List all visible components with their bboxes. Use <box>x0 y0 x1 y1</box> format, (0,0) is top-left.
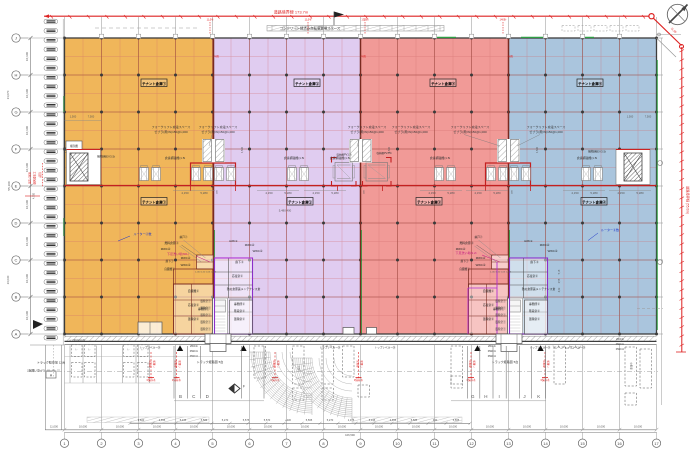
svg-text:2,58: 2,58 <box>559 278 561 283</box>
svg-text:17: 17 <box>654 441 659 446</box>
svg-text:防災倉庫兼メンテナンス倉: 防災倉庫兼メンテナンス倉 <box>227 287 261 291</box>
svg-text:倉素補強機(1.5t: 倉素補強機(1.5t <box>577 155 597 160</box>
svg-text:梱包機: 梱包機 <box>70 144 78 148</box>
svg-text:風除室②: 風除室② <box>529 317 540 321</box>
svg-text:4,150: 4,150 <box>617 191 625 195</box>
svg-text:5,585: 5,585 <box>201 418 208 422</box>
svg-text:5,280: 5,280 <box>284 191 292 195</box>
svg-text:10,000: 10,000 <box>560 425 569 429</box>
svg-text:5,280: 5,280 <box>447 191 455 195</box>
svg-text:4,500: 4,500 <box>536 146 539 153</box>
svg-text:区画線: 区画線 <box>543 360 547 368</box>
svg-text:仮囲い: 仮囲い <box>178 360 182 368</box>
svg-text:11,00: 11,00 <box>670 26 678 34</box>
svg-text:I: I <box>498 394 499 399</box>
svg-text:13: 13 <box>506 441 511 446</box>
svg-text:10,000: 10,000 <box>338 425 347 429</box>
svg-text:仮囲いライン: 仮囲いライン <box>29 369 46 373</box>
svg-text:事務所②: 事務所② <box>234 302 245 306</box>
svg-text:自販機②: 自販機② <box>188 289 199 293</box>
svg-text:自販機②: 自販機② <box>483 289 494 293</box>
svg-text:↓勾配: ↓勾配 <box>360 54 367 58</box>
svg-text:+430: +430 <box>285 418 291 422</box>
svg-text:仮囲い設置: 仮囲い設置 <box>28 172 32 185</box>
svg-text:A: A <box>15 332 18 337</box>
svg-text:倉素補強機(1.5t: 倉素補強機(1.5t <box>430 155 450 160</box>
svg-text:道路境界線 173.7m: 道路境界線 173.7m <box>274 9 309 15</box>
svg-text:3,655: 3,655 <box>159 418 166 422</box>
svg-text:10,000: 10,000 <box>523 425 532 429</box>
svg-text:10,100: 10,100 <box>25 163 29 173</box>
svg-text:下足洗い場(60L): 下足洗い場(60L) <box>167 251 189 256</box>
svg-text:MWC②: MWC② <box>181 256 191 260</box>
svg-text:16: 16 <box>617 441 622 446</box>
svg-text:WWC②: WWC② <box>548 249 558 253</box>
svg-text:12: 12 <box>469 441 474 446</box>
svg-text:4,150: 4,150 <box>312 191 320 195</box>
svg-text:1,500: 1,500 <box>627 115 634 119</box>
svg-text:106,590: 106,590 <box>345 433 355 437</box>
svg-text:区画線: 区画線 <box>174 360 178 368</box>
svg-text:F: F <box>15 147 18 152</box>
svg-text:11: 11 <box>432 441 437 446</box>
svg-text:10,100: 10,100 <box>25 89 29 99</box>
svg-text:風除室②: 風除室② <box>483 317 494 321</box>
svg-text:風除室①: 風除室① <box>495 306 506 310</box>
svg-text:テナント倉庫③: テナント倉庫③ <box>417 200 441 205</box>
svg-text:10,000: 10,000 <box>634 425 643 429</box>
svg-text:2: 2 <box>100 441 103 446</box>
svg-text:H: H <box>484 394 487 399</box>
svg-text:4,150: 4,150 <box>474 191 482 195</box>
svg-text:廊下①: 廊下① <box>166 259 174 263</box>
svg-text:HWC②: HWC② <box>229 239 238 243</box>
svg-text:D: D <box>15 221 18 226</box>
svg-text:燃料倉庫②: 燃料倉庫② <box>165 241 179 245</box>
svg-text:DWC①: DWC① <box>616 342 625 346</box>
svg-text:4,150: 4,150 <box>265 191 273 195</box>
svg-text:G: G <box>471 394 475 399</box>
svg-text:HWC②: HWC② <box>524 239 533 243</box>
svg-text:MWC②: MWC② <box>161 247 171 251</box>
svg-text:倉素補強機(1.5t: 倉素補強機(1.5t <box>330 155 350 160</box>
svg-text:9: 9 <box>359 441 362 446</box>
svg-text:J: J <box>15 36 17 41</box>
svg-text:C: C <box>15 258 18 263</box>
svg-text:10,000: 10,000 <box>264 425 273 429</box>
svg-text:31,070: 31,070 <box>6 90 10 99</box>
svg-text:2WC①: 2WC① <box>616 337 625 341</box>
svg-text:WWC②: WWC② <box>476 263 486 267</box>
svg-text:10,000: 10,000 <box>190 425 199 429</box>
svg-text:荷物用EV3.5t: 荷物用EV3.5t <box>97 154 115 159</box>
svg-text:トラック経路図 5台: トラック経路図 5台 <box>492 359 519 364</box>
svg-text:階段室②: 階段室② <box>234 309 245 313</box>
svg-text:ゼブラ(黄)W(150@1,000: ゼブラ(黄)W(150@1,000 <box>350 129 384 134</box>
svg-text:5: 5 <box>211 441 214 446</box>
svg-text:3保存木: 3保存木 <box>354 378 364 382</box>
svg-text:自販機①: 自販機① <box>164 267 175 271</box>
svg-text:10: 10 <box>395 441 400 446</box>
svg-text:10,000: 10,000 <box>449 425 458 429</box>
svg-text:廊下①: 廊下① <box>461 259 469 263</box>
svg-text:5,280: 5,280 <box>636 191 644 195</box>
svg-text:A: A <box>50 374 53 378</box>
svg-text:フォークリフト充電スペース: フォークリフト充電スペース <box>348 124 387 129</box>
svg-text:4,150: 4,150 <box>181 191 189 195</box>
svg-text:10,100: 10,100 <box>25 52 29 62</box>
svg-text:ゼブラ(黄)W(150@1,000: ゼブラ(黄)W(150@1,000 <box>453 129 487 134</box>
svg-text:F: F <box>243 384 246 389</box>
svg-text:4,150: 4,150 <box>428 191 436 195</box>
svg-text:風除室①: 風除室① <box>495 320 506 324</box>
svg-text:中型車: 中型車 <box>630 362 634 370</box>
svg-text:3保存木: 3保存木 <box>540 378 550 382</box>
svg-text:1: 1 <box>63 441 66 446</box>
svg-text:トップレベラー⑭: トップレベラー⑭ <box>320 346 341 350</box>
svg-text:7,500: 7,500 <box>645 115 652 119</box>
svg-text:10,000: 10,000 <box>375 425 384 429</box>
svg-text:5,575: 5,575 <box>243 418 250 422</box>
svg-text:応接室②: 応接室② <box>527 274 538 278</box>
svg-text:1常B6: 1常B6 <box>361 18 369 22</box>
svg-text:ゼブラ(黄)W(150@1,000: ゼブラ(黄)W(150@1,000 <box>529 129 563 134</box>
svg-text:K: K <box>537 394 540 399</box>
svg-text:B: B <box>179 394 182 399</box>
svg-text:7,500: 7,500 <box>88 115 95 119</box>
svg-text:10,100: 10,100 <box>25 274 29 284</box>
svg-text:DWC②: DWC② <box>190 354 199 358</box>
svg-text:WWC②: WWC② <box>181 263 191 267</box>
svg-text:11か6: 11か6 <box>207 18 214 22</box>
svg-text:テナント倉庫①: テナント倉庫① <box>142 200 166 205</box>
svg-text:10,100: 10,100 <box>25 126 29 136</box>
svg-text:トップレベラー⑭: トップレベラー⑭ <box>530 346 551 350</box>
svg-text:テナント倉庫②: テナント倉庫② <box>288 200 312 205</box>
svg-text:E: E <box>15 184 18 189</box>
svg-text:5,280: 5,280 <box>331 191 339 195</box>
svg-text:トップレベラー⑭: トップレベラー⑭ <box>140 346 161 350</box>
svg-text:B: B <box>15 295 18 300</box>
svg-text:4: 4 <box>174 441 177 446</box>
svg-text:7: 7 <box>285 441 288 446</box>
svg-text:フォークリフト充電スペース: フォークリフト充電スペース <box>152 124 191 129</box>
svg-text:5,280: 5,280 <box>590 191 598 195</box>
svg-text:フォークリフト充電スペース: フォークリフト充電スペース <box>451 124 490 129</box>
svg-text:工事区域線: 工事区域線 <box>33 172 37 185</box>
svg-text:15: 15 <box>580 441 585 446</box>
svg-text:仮囲い: 仮囲い <box>547 360 551 368</box>
svg-text:↓勾配: ↓勾配 <box>507 54 514 58</box>
svg-text:8: 8 <box>322 441 325 446</box>
svg-text:5,270: 5,270 <box>222 418 229 422</box>
svg-text:D: D <box>206 394 210 399</box>
svg-text:4,29: 4,29 <box>559 287 561 292</box>
svg-text:DWC②: DWC② <box>616 347 625 351</box>
svg-text:レ: レ <box>127 348 130 351</box>
svg-text:9,600: 9,600 <box>138 418 145 422</box>
svg-text:5,345: 5,345 <box>180 418 187 422</box>
svg-text:140B-: 140B- <box>500 18 507 22</box>
svg-text:レ: レ <box>75 348 78 351</box>
svg-text:荷物用EV3.5t: 荷物用EV3.5t <box>588 149 606 154</box>
svg-text:5,18: 5,18 <box>559 269 561 274</box>
svg-text:レ: レ <box>88 348 91 351</box>
svg-text:ドア910×(L)20: ドア910×(L)20 <box>69 338 85 342</box>
svg-text:コンクリート縁済み自転車置場スペース: コンクリート縁済み自転車置場スペース <box>280 26 341 31</box>
svg-text:風除室①: 風除室① <box>200 327 211 331</box>
svg-text:10,000: 10,000 <box>227 425 236 429</box>
svg-text:DWC②: DWC② <box>488 354 497 358</box>
svg-text:テナント倉庫②: テナント倉庫② <box>295 81 319 86</box>
svg-text:ゼブラ(黄)W(150@1,000: ゼブラ(黄)W(150@1,000 <box>394 129 428 134</box>
svg-text:10,000: 10,000 <box>412 425 421 429</box>
svg-text:区画線: 区画線 <box>469 360 473 368</box>
svg-text:2WC①: 2WC① <box>190 344 199 348</box>
svg-text:廊下②: 廊下② <box>235 260 244 264</box>
svg-text:風除室①: 風除室① <box>200 313 211 317</box>
svg-text:防災倉庫兼メンテナンス倉: 防災倉庫兼メンテナンス倉 <box>522 287 556 291</box>
svg-text:MWC②: MWC② <box>456 247 466 251</box>
svg-text:6: 6 <box>248 441 251 446</box>
svg-text:フォークリフト充電スペース: フォークリフト充電スペース <box>527 124 566 129</box>
svg-text:納戸②: 納戸② <box>475 235 483 239</box>
svg-text:3保存木: 3保存木 <box>146 378 156 382</box>
svg-text:仮囲い: 仮囲い <box>473 360 477 368</box>
svg-text:収納棚PV3.5t: 収納棚PV3.5t <box>376 151 391 155</box>
svg-text:1,150 1,50 1,65 1,165: 1,150 1,50 1,65 1,165 <box>490 272 512 274</box>
svg-text:10,100: 10,100 <box>25 311 29 321</box>
svg-text:風除室①: 風除室① <box>200 320 211 324</box>
svg-text:2WC①: 2WC① <box>488 344 497 348</box>
svg-text:テナント倉庫④: テナント倉庫④ <box>578 81 602 86</box>
svg-text:風除室①: 風除室① <box>495 299 506 303</box>
svg-text:テナント倉庫③: テナント倉庫③ <box>431 81 455 86</box>
svg-text:トラック駐車場 12台: トラック駐車場 12台 <box>37 360 65 365</box>
svg-text:↓勾配: ↓勾配 <box>213 54 220 58</box>
svg-text:11か6: 11か6 <box>305 18 312 22</box>
svg-text:4,150: 4,150 <box>571 191 579 195</box>
svg-text:ゼブラ(黄)W(150@1,000: ゼブラ(黄)W(150@1,000 <box>154 129 188 134</box>
svg-text:10,100: 10,100 <box>25 237 29 247</box>
svg-text:J: J <box>523 394 525 399</box>
svg-text:フォークリフト充電スペース: フォークリフト充電スペース <box>199 124 238 129</box>
svg-text:風除室①: 風除室① <box>495 313 506 317</box>
svg-text:C: C <box>192 394 196 399</box>
svg-text:3,655: 3,655 <box>390 418 397 422</box>
svg-text:倉素補強機(1.5t: 倉素補強機(1.5t <box>284 155 304 160</box>
svg-text:4,500: 4,500 <box>241 146 244 153</box>
svg-text:10,000: 10,000 <box>79 425 88 429</box>
svg-text:トップレベラー⑭: トップレベラー⑭ <box>375 346 396 350</box>
svg-text:10,100: 10,100 <box>25 200 29 210</box>
svg-text:風除室②: 風除室② <box>234 317 245 321</box>
svg-text:区画線: 区画線 <box>273 360 277 368</box>
svg-text:23,030: 23,030 <box>6 275 10 284</box>
svg-text:風除室①: 風除室① <box>495 327 506 331</box>
svg-text:境界: 境界 <box>38 172 42 178</box>
svg-text:5,570: 5,570 <box>264 418 271 422</box>
svg-text:1,500: 1,500 <box>70 115 77 119</box>
svg-text:11,000: 11,000 <box>50 425 59 429</box>
svg-text:5,270: 5,270 <box>327 418 334 422</box>
svg-text:風除室②: 風除室② <box>188 317 199 321</box>
svg-text:燃料倉庫②: 燃料倉庫② <box>460 241 474 245</box>
svg-text:WWC②: WWC② <box>253 249 263 253</box>
svg-text:区画線: 区画線 <box>356 360 360 368</box>
svg-text:風除室①: 風除室① <box>200 306 211 310</box>
svg-text:廊下②: 廊下② <box>530 260 539 264</box>
svg-text:5,345: 5,345 <box>369 418 376 422</box>
svg-text:5,585: 5,585 <box>411 418 418 422</box>
svg-text:テナント倉庫①: テナント倉庫① <box>142 81 166 86</box>
svg-text:仮囲い: 仮囲い <box>153 360 157 368</box>
svg-text:テナント倉庫④: テナント倉庫④ <box>582 200 606 205</box>
svg-text:10,000: 10,000 <box>597 425 606 429</box>
svg-text:自販機①: 自販機① <box>459 267 470 271</box>
svg-text:10,000: 10,000 <box>116 425 125 429</box>
svg-text:3: 3 <box>137 441 140 446</box>
svg-text:道路境界線 (55.0m): 道路境界線 (55.0m) <box>686 186 691 214</box>
svg-text:MWC②: MWC② <box>476 256 486 260</box>
svg-text:区画線: 区画線 <box>149 360 153 368</box>
svg-text:H: H <box>15 73 18 78</box>
svg-text:3保存木: 3保存木 <box>172 378 182 382</box>
svg-text:事務所②: 事務所② <box>529 302 540 306</box>
svg-text:応接室②: 応接室② <box>232 274 243 278</box>
svg-text:5,280: 5,280 <box>493 191 501 195</box>
svg-text:階段室②: 階段室② <box>529 309 540 313</box>
svg-text:10,000: 10,000 <box>486 425 495 429</box>
svg-text:納戸②: 納戸② <box>180 235 188 239</box>
svg-text:フォークリフト充電スペース: フォークリフト充電スペース <box>392 124 431 129</box>
svg-text:ルーター②数: ルーター②数 <box>601 227 619 232</box>
svg-text:5,565: 5,565 <box>306 418 313 422</box>
svg-text:1,150 1,50 1,65 1,165: 1,150 1,50 1,65 1,165 <box>195 272 217 274</box>
svg-text:倉素補強機(1.5t: 倉素補強機(1.5t <box>165 155 185 160</box>
svg-text:55,100: 55,100 <box>7 181 11 191</box>
svg-text:430: 430 <box>433 418 438 422</box>
svg-text:1,375: 1,375 <box>348 418 355 422</box>
svg-text:仮囲い: 仮囲い <box>360 360 364 368</box>
svg-text:14: 14 <box>543 441 548 446</box>
svg-text:5,480 400: 5,480 400 <box>279 209 292 213</box>
svg-text:4,700: 4,700 <box>33 192 36 199</box>
svg-text:ゼブラ(黄)W(150@1,000: ゼブラ(黄)W(150@1,000 <box>201 129 235 134</box>
svg-text:5,565: 5,565 <box>453 418 460 422</box>
svg-text:DWC①: DWC① <box>190 349 199 353</box>
svg-text:G: G <box>14 110 17 115</box>
svg-text:10,000: 10,000 <box>301 425 310 429</box>
svg-text:ルーター②数: ルーター②数 <box>133 231 151 236</box>
svg-text:風除室①: 風除室① <box>200 299 211 303</box>
svg-text:10,000: 10,000 <box>153 425 162 429</box>
svg-text:MWC②: MWC② <box>540 243 550 247</box>
svg-text:DWC①: DWC① <box>488 349 497 353</box>
svg-text:5,280: 5,280 <box>200 191 208 195</box>
svg-text:MWC②: MWC② <box>245 243 255 247</box>
svg-text:トップレベラー⑭: トップレベラー⑭ <box>565 346 586 350</box>
